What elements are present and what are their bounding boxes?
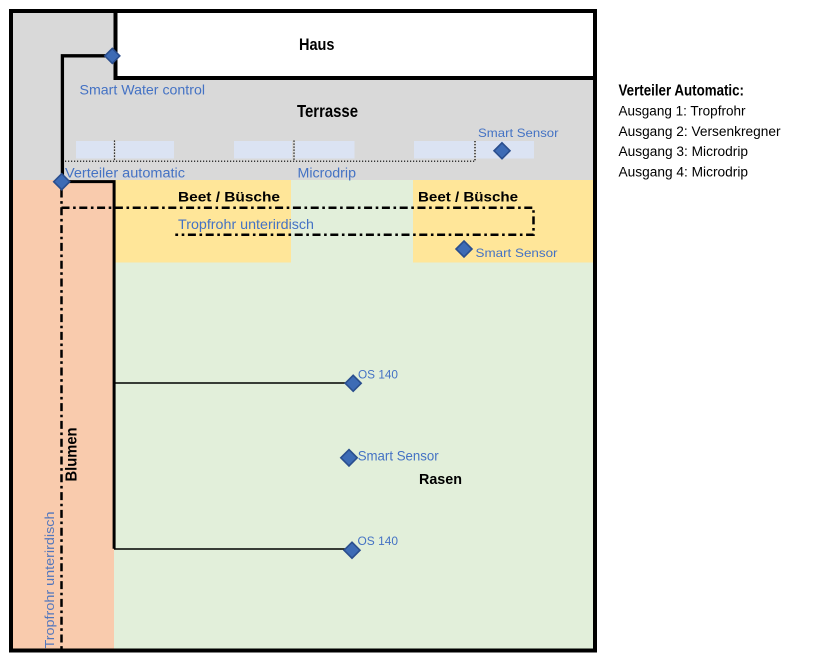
svg-text:Blumen: Blumen <box>63 428 80 482</box>
svg-text:Haus: Haus <box>299 36 335 54</box>
svg-text:Verteiler Automatic:: Verteiler Automatic: <box>619 83 745 100</box>
svg-text:OS 140: OS 140 <box>358 534 399 548</box>
svg-text:Microdrip: Microdrip <box>298 166 357 181</box>
svg-text:Beet / Büsche: Beet / Büsche <box>418 189 518 205</box>
svg-text:Smart Water control: Smart Water control <box>80 81 206 97</box>
svg-text:Ausgang 2: Versenkregner: Ausgang 2: Versenkregner <box>619 124 782 139</box>
svg-text:Tropfrohr unterirdisch: Tropfrohr unterirdisch <box>43 511 57 648</box>
svg-text:Tropfrohr unterirdisch: Tropfrohr unterirdisch <box>178 216 314 232</box>
svg-text:Ausgang 3: Microdrip: Ausgang 3: Microdrip <box>619 144 749 159</box>
svg-text:Ausgang 1: Tropfrohr: Ausgang 1: Tropfrohr <box>619 104 747 119</box>
svg-text:Smart Sensor: Smart Sensor <box>358 448 439 464</box>
svg-text:Beet / Büsche: Beet / Büsche <box>178 189 280 205</box>
svg-text:OS 140: OS 140 <box>358 368 398 382</box>
svg-text:Smart Sensor: Smart Sensor <box>478 126 559 140</box>
svg-text:Terrasse: Terrasse <box>297 101 358 121</box>
svg-text:Smart Sensor: Smart Sensor <box>476 246 558 260</box>
svg-text:Ausgang 4: Microdrip: Ausgang 4: Microdrip <box>619 164 749 179</box>
svg-text:Verteiler automatic: Verteiler automatic <box>65 166 185 181</box>
svg-text:Rasen: Rasen <box>419 472 462 488</box>
